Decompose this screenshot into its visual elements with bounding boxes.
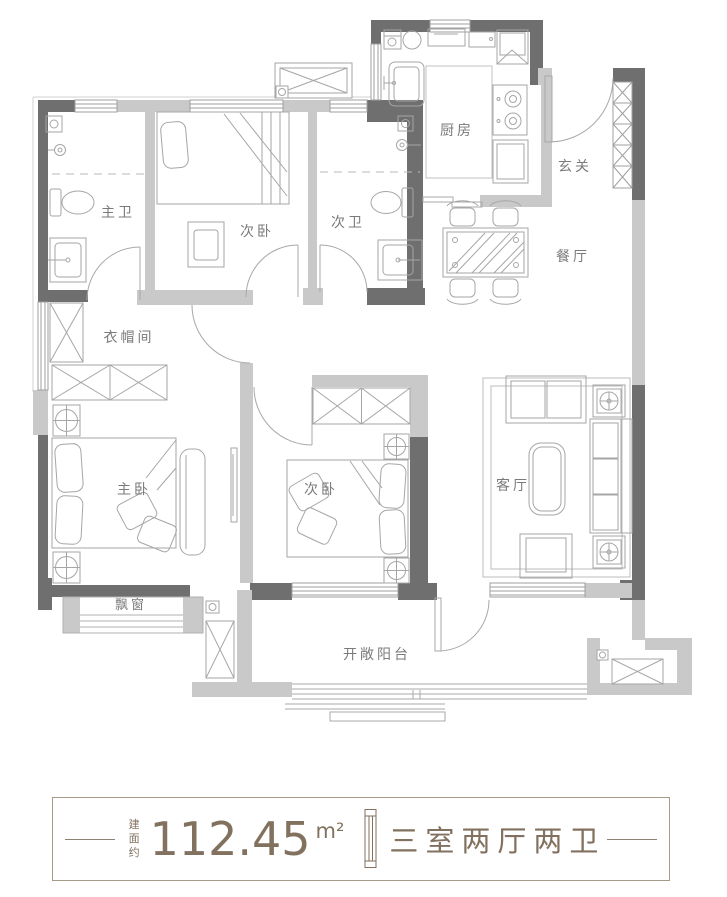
room-label-dining: 餐厅 <box>556 249 590 265</box>
room-label-bedroom-bottom: 次卧 <box>304 482 338 498</box>
room-label-master-bath: 主卫 <box>101 205 135 221</box>
room-label-cloakroom: 衣帽间 <box>104 330 155 346</box>
banner-right-rule <box>607 839 657 840</box>
furniture-second-bath <box>320 116 422 280</box>
area-unit: m² <box>316 819 345 843</box>
room-label-kitchen: 厨房 <box>440 123 474 139</box>
doors <box>87 76 613 651</box>
structure-outline <box>33 97 371 392</box>
area-banner: 建面约 112.45 m² 三室两厅两卫 <box>52 797 670 881</box>
room-label-foyer: 玄关 <box>558 158 592 175</box>
furniture-kitchen <box>384 29 528 183</box>
balcony-railing <box>285 684 587 721</box>
room-label-balcony: 开敞阳台 <box>343 647 411 663</box>
layout-type-text: 三室两厅两卫 <box>389 818 605 860</box>
shoe-cabinet <box>613 82 632 188</box>
furniture-bedroom-top <box>157 112 289 267</box>
floorplan-page: 主卫 次卧 次卫 厨房 玄关 餐厅 衣帽间 主卧 次卧 客厅 飘窗 开敞阳台 建… <box>0 0 727 897</box>
room-label-master-bedroom: 主卧 <box>117 482 151 498</box>
column-divider-icon <box>362 808 379 870</box>
room-label-bedroom-top: 次卧 <box>240 224 274 240</box>
furniture-living <box>483 376 632 578</box>
room-label-bay-window: 飘窗 <box>115 597 147 613</box>
room-label-living: 客厅 <box>496 477 530 494</box>
furniture-master-bath <box>46 116 145 282</box>
banner-left-rule <box>65 839 115 840</box>
area-prefix: 建面约 <box>129 818 142 859</box>
furniture-dining <box>443 201 528 305</box>
floor-plan: 主卫 次卧 次卫 厨房 玄关 餐厅 衣帽间 主卧 次卧 客厅 飘窗 开敞阳台 <box>0 0 727 780</box>
room-label-second-bath: 次卫 <box>331 215 365 231</box>
area-value: 112.45 <box>150 812 311 866</box>
furniture-cloakroom <box>50 303 167 400</box>
